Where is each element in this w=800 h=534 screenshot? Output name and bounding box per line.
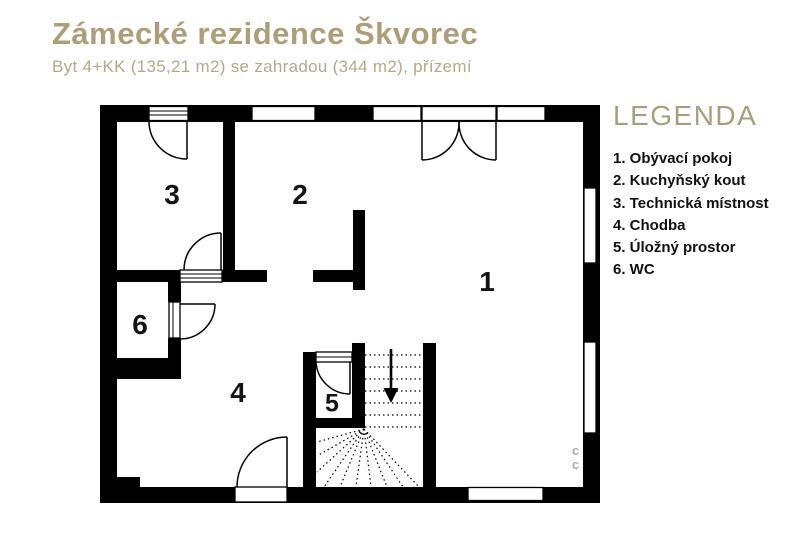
legend-item-6: 6. WC [613, 259, 793, 281]
legend-item-2: 2. Kuchyňský kout [613, 170, 793, 192]
legend-list: 1. Obývací pokoj 2. Kuchyňský kout 3. Te… [613, 148, 793, 282]
doors [149, 122, 496, 487]
room-label-2: 2 [292, 181, 308, 209]
room-label-6: 6 [132, 311, 148, 339]
room-label-3: 3 [164, 181, 180, 209]
room-label-4: 4 [230, 379, 246, 407]
legend-item-5: 5. Úložný prostor [613, 237, 793, 259]
stair-direction-arrow [384, 349, 399, 403]
windows [149, 107, 596, 503]
legend-item-4: 4. Chodba [613, 215, 793, 237]
watermark-artifact: c c [572, 444, 579, 472]
room-label-1: 1 [479, 268, 495, 296]
room-label-5: 5 [325, 392, 339, 417]
legend-item-3: 3. Technická místnost [613, 193, 793, 215]
legend: LEGENDA 1. Obývací pokoj 2. Kuchyňský ko… [613, 100, 793, 282]
legend-item-1: 1. Obývací pokoj [613, 148, 793, 170]
legend-heading: LEGENDA [613, 100, 793, 132]
